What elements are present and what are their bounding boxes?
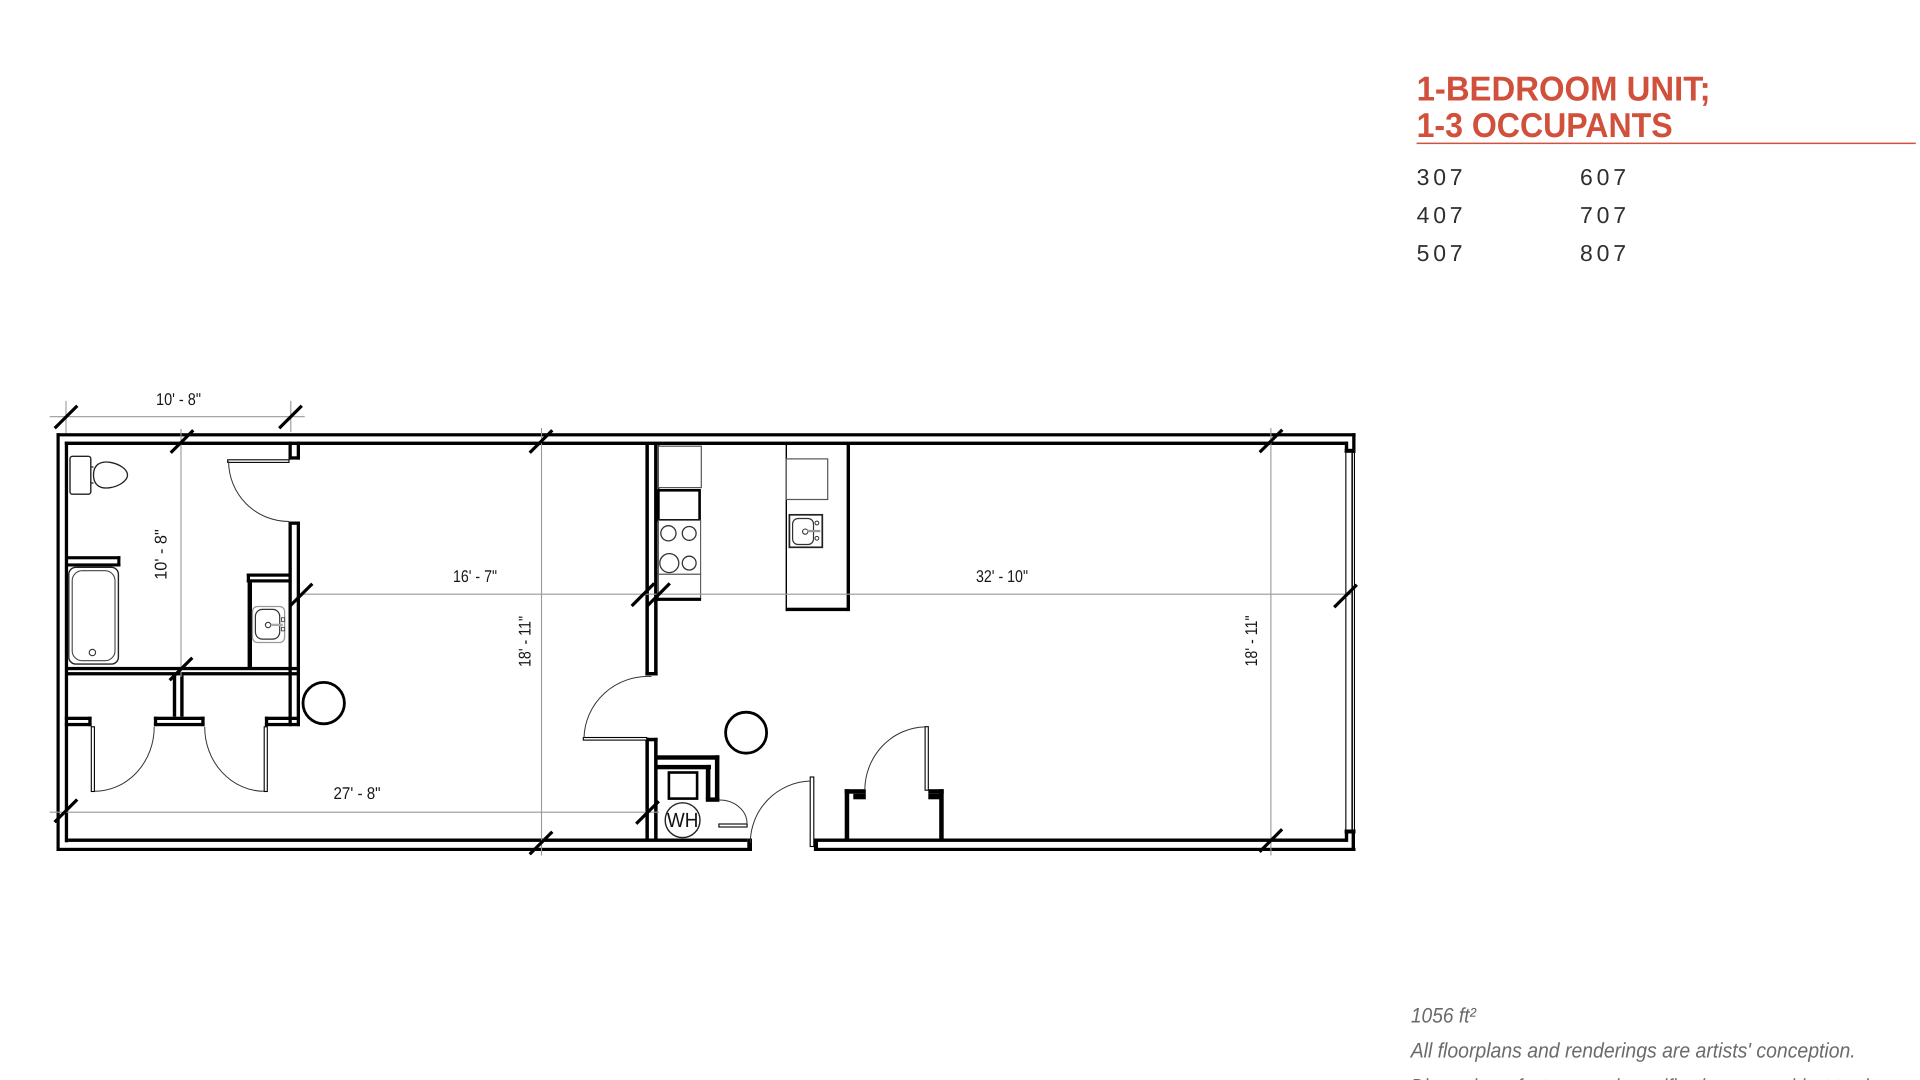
svg-text:All floorplans and renderings: All floorplans and renderings are artist…: [1409, 1040, 1856, 1063]
svg-text:18' - 11": 18' - 11": [516, 616, 535, 667]
svg-text:607: 607: [1580, 164, 1626, 190]
svg-text:1-3 OCCUPANTS: 1-3 OCCUPANTS: [1417, 107, 1673, 145]
svg-text:27' - 8": 27' - 8": [334, 784, 381, 803]
svg-text:707: 707: [1580, 202, 1626, 228]
svg-text:307: 307: [1417, 164, 1463, 190]
svg-text:WH: WH: [667, 809, 699, 832]
svg-text:1056 ft²: 1056 ft²: [1411, 1005, 1477, 1028]
svg-text:18' - 11": 18' - 11": [1242, 616, 1261, 667]
svg-text:507: 507: [1417, 240, 1463, 266]
svg-text:407: 407: [1417, 202, 1463, 228]
svg-text:1-BEDROOM UNIT;: 1-BEDROOM UNIT;: [1417, 71, 1711, 109]
svg-text:16' - 7": 16' - 7": [453, 567, 497, 586]
svg-text:10' - 8": 10' - 8": [152, 529, 171, 580]
svg-text:10' - 8": 10' - 8": [156, 390, 201, 409]
svg-text:Dimensions, features and speci: Dimensions, features and specifications …: [1411, 1076, 1920, 1080]
svg-text:32' - 10": 32' - 10": [976, 567, 1028, 586]
svg-text:807: 807: [1580, 240, 1626, 266]
